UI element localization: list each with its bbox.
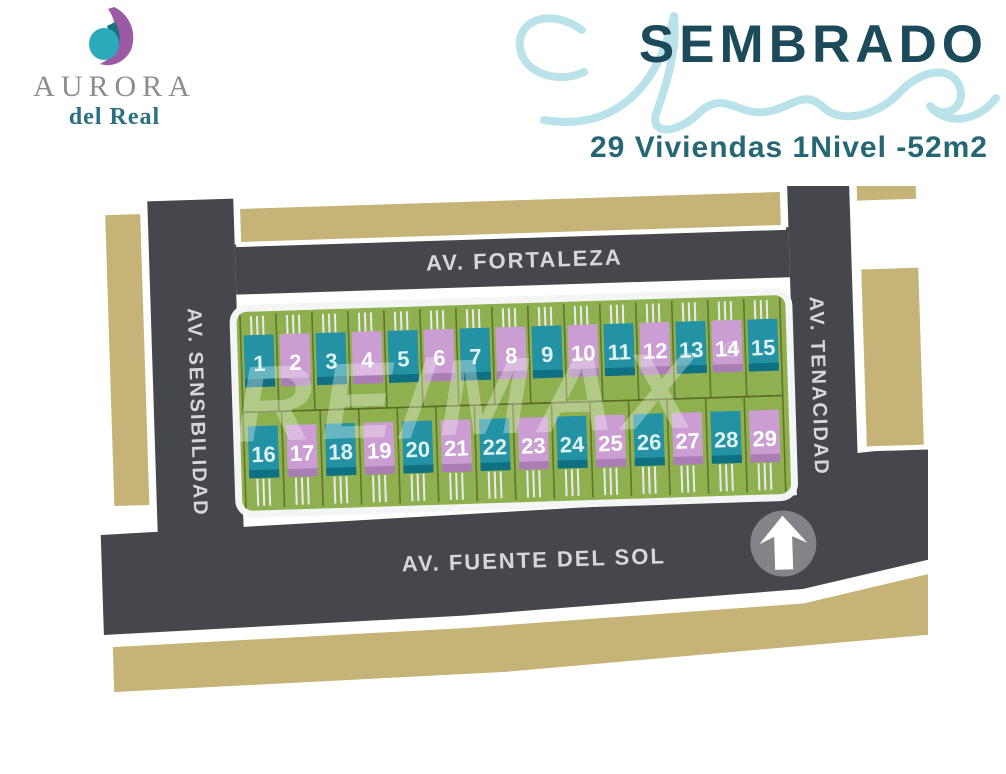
- block-right: [859, 265, 927, 449]
- watermark: RE/MAX: [233, 329, 705, 465]
- page-subtitle: 29 Viviendas 1Nivel -52m2: [590, 131, 988, 165]
- brand-name: AURORA: [12, 70, 217, 104]
- block-left: [103, 212, 152, 509]
- brand-logo: AURORA del Real: [12, 6, 217, 131]
- site-map: 1234567891011121314151617181920212223242…: [98, 186, 928, 711]
- watermark-reg: ®: [723, 337, 741, 363]
- page: AURORA del Real SEMBRADO 29 Viviendas 1N…: [0, 0, 1006, 774]
- brand-subname: del Real: [12, 104, 217, 131]
- page-title: SEMBRADO: [639, 14, 988, 75]
- lot-number: 29: [752, 426, 777, 452]
- block-top-right: [854, 186, 919, 203]
- title-block: SEMBRADO 29 Viviendas 1Nivel -52m2: [486, 0, 1006, 185]
- lot-number: 15: [751, 335, 776, 361]
- lot-number: 28: [714, 427, 739, 453]
- aurora-moon-logo: [84, 6, 146, 68]
